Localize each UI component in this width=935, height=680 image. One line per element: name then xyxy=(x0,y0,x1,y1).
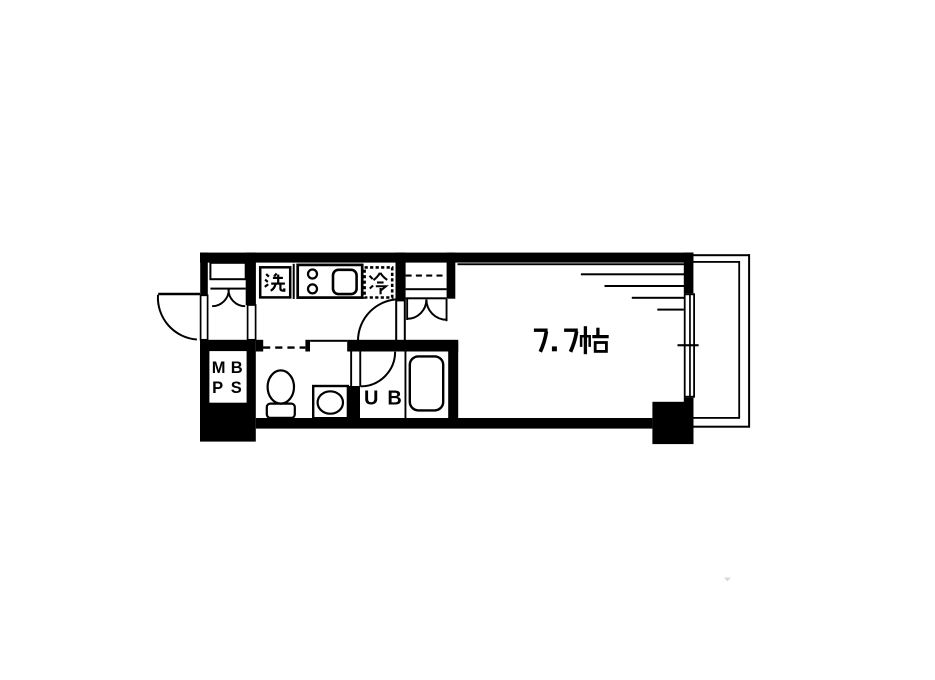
svg-text:B: B xyxy=(387,388,401,410)
svg-text:P: P xyxy=(212,379,223,397)
svg-text:B: B xyxy=(231,359,243,377)
svg-text:M: M xyxy=(212,359,226,377)
svg-text:S: S xyxy=(231,379,242,397)
svg-text:U: U xyxy=(364,388,378,410)
